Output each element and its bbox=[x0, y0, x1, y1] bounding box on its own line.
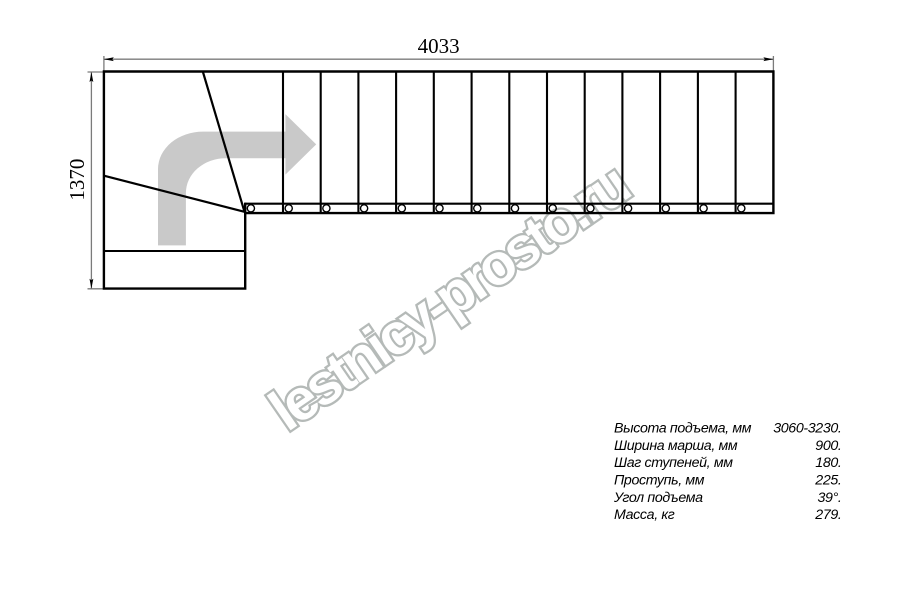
svg-text:Ширина марша, мм: Ширина марша, мм bbox=[614, 438, 738, 454]
svg-text:4033: 4033 bbox=[418, 34, 460, 58]
svg-text:39°.: 39°. bbox=[818, 490, 842, 506]
svg-text:3060-3230.: 3060-3230. bbox=[773, 421, 841, 437]
svg-text:Шаг ступеней, мм: Шаг ступеней, мм bbox=[614, 455, 733, 471]
svg-text:225.: 225. bbox=[814, 473, 841, 489]
svg-text:Проступь, мм: Проступь, мм bbox=[614, 473, 705, 489]
svg-text:Масса, кг: Масса, кг bbox=[614, 507, 675, 523]
svg-text:180.: 180. bbox=[815, 455, 841, 471]
svg-text:Угол подъема: Угол подъема bbox=[613, 490, 703, 506]
svg-text:279.: 279. bbox=[814, 507, 841, 523]
svg-text:900.: 900. bbox=[815, 438, 841, 454]
svg-text:1370: 1370 bbox=[65, 159, 89, 201]
svg-text:Высота подъема, мм: Высота подъема, мм bbox=[614, 421, 752, 437]
